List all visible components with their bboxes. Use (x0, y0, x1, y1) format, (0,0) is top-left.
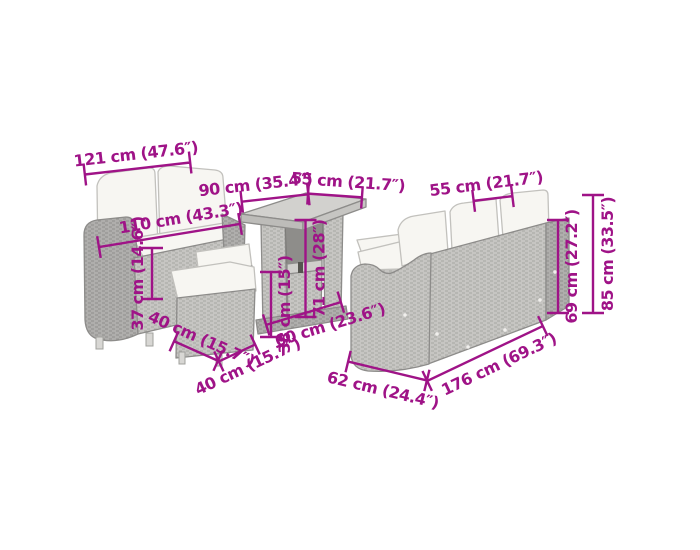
dimension-label: 69 cm (27.2″) (562, 209, 581, 323)
rivet-dot (403, 313, 407, 317)
sofa-leg (146, 333, 153, 346)
dimension-label: 121 cm (47.6″) (73, 138, 199, 171)
rivet-dot (503, 328, 507, 332)
dimension-label: 85 cm (33.5″) (598, 197, 617, 311)
dim-sofa3-total-height: 85 cm (33.5″) (582, 195, 617, 313)
table-latch (298, 262, 303, 273)
diagram-canvas: 121 cm (47.6″) 110 cm (43.3″) 90 cm (35.… (0, 0, 700, 550)
rivet-dot (466, 345, 470, 349)
rivet-dot (538, 298, 542, 302)
product-dimension-diagram: 121 cm (47.6″) 110 cm (43.3″) 90 cm (35.… (0, 0, 700, 550)
rivet-dot (553, 270, 557, 274)
dimension-label: 71 cm (28″) (310, 219, 329, 317)
sofa-leg (96, 337, 103, 349)
dimension-label: 37 cm (14.6″) (128, 216, 147, 330)
rivet-dot (435, 332, 439, 336)
stool-leg (179, 352, 185, 364)
